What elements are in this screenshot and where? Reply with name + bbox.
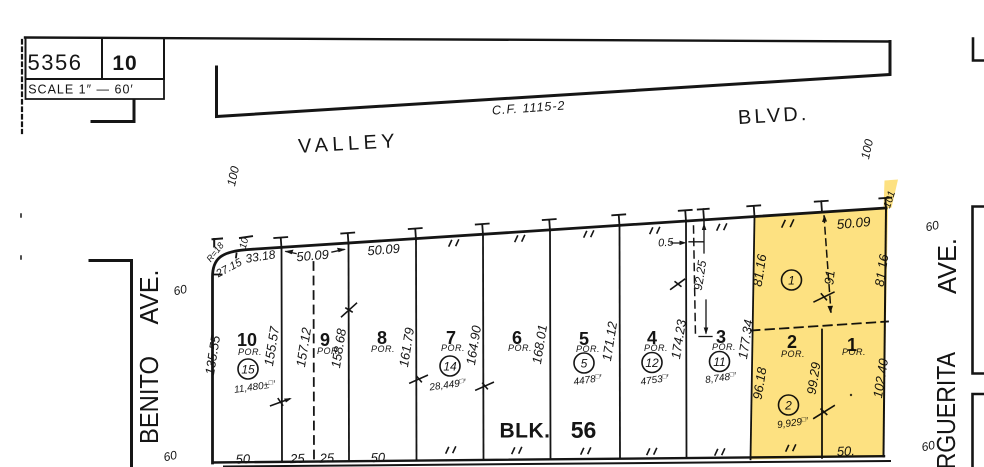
- svg-text:100: 100: [858, 138, 876, 161]
- svg-text:15: 15: [241, 363, 255, 377]
- svg-text:BENITO: BENITO: [134, 356, 164, 444]
- svg-text:164.90: 164.90: [463, 324, 484, 366]
- svg-text:28,449□′: 28,449□′: [428, 377, 468, 393]
- svg-text:11: 11: [713, 355, 725, 369]
- svg-text:25: 25: [318, 450, 335, 466]
- svg-text:R=18: R=18: [204, 240, 225, 263]
- svg-text:25: 25: [289, 451, 306, 467]
- svg-text:60: 60: [172, 282, 188, 299]
- svg-text:56: 56: [571, 417, 597, 443]
- svg-text:12: 12: [645, 356, 659, 370]
- svg-text:POR.: POR.: [238, 347, 262, 357]
- svg-text:POR.: POR.: [441, 343, 465, 353]
- svg-text:VALLEY: VALLEY: [298, 130, 400, 158]
- svg-text:171.12: 171.12: [599, 320, 620, 362]
- svg-text:60: 60: [162, 448, 178, 465]
- svg-text:50.09: 50.09: [296, 247, 330, 265]
- svg-text:135.55: 135.55: [202, 334, 223, 376]
- svg-text:168.01: 168.01: [529, 323, 550, 365]
- svg-text:SCALE 1″ — 60′: SCALE 1″ — 60′: [28, 83, 134, 97]
- svg-text:157.12: 157.12: [293, 326, 314, 368]
- svg-text:8,748□′: 8,748□′: [704, 371, 737, 386]
- svg-text:BLVD.: BLVD.: [737, 103, 810, 129]
- svg-text:4753□′: 4753□′: [640, 373, 671, 388]
- svg-text:100: 100: [224, 165, 242, 188]
- svg-text:0.5: 0.5: [658, 236, 675, 249]
- svg-text:50: 50: [370, 450, 386, 466]
- svg-text:AVE.: AVE.: [932, 238, 962, 294]
- svg-text:POR.: POR.: [508, 343, 532, 353]
- svg-text:161.79: 161.79: [396, 326, 417, 368]
- svg-text:POR.: POR.: [576, 344, 600, 354]
- svg-text:AVE.: AVE.: [134, 270, 164, 325]
- svg-text:60: 60: [924, 218, 940, 235]
- svg-text:5: 5: [581, 357, 588, 371]
- svg-text:5356: 5356: [28, 50, 83, 75]
- svg-text:14: 14: [443, 360, 457, 374]
- svg-text:C.F. 1115-2: C.F. 1115-2: [492, 98, 566, 117]
- svg-text:158.68: 158.68: [328, 327, 349, 369]
- svg-text:BLK.: BLK.: [500, 420, 551, 443]
- svg-text:50: 50: [235, 451, 251, 467]
- svg-text:10: 10: [238, 236, 251, 250]
- svg-text:10: 10: [112, 52, 137, 75]
- svg-text:POR.: POR.: [371, 344, 395, 354]
- svg-text:POR.: POR.: [644, 343, 668, 353]
- svg-text:50.09: 50.09: [367, 241, 401, 259]
- svg-text:155.57: 155.57: [261, 325, 282, 367]
- svg-text:11,480±□′: 11,480±□′: [233, 379, 277, 396]
- svg-text:POR.: POR.: [712, 342, 736, 352]
- svg-text:4478□′: 4478□′: [573, 373, 604, 388]
